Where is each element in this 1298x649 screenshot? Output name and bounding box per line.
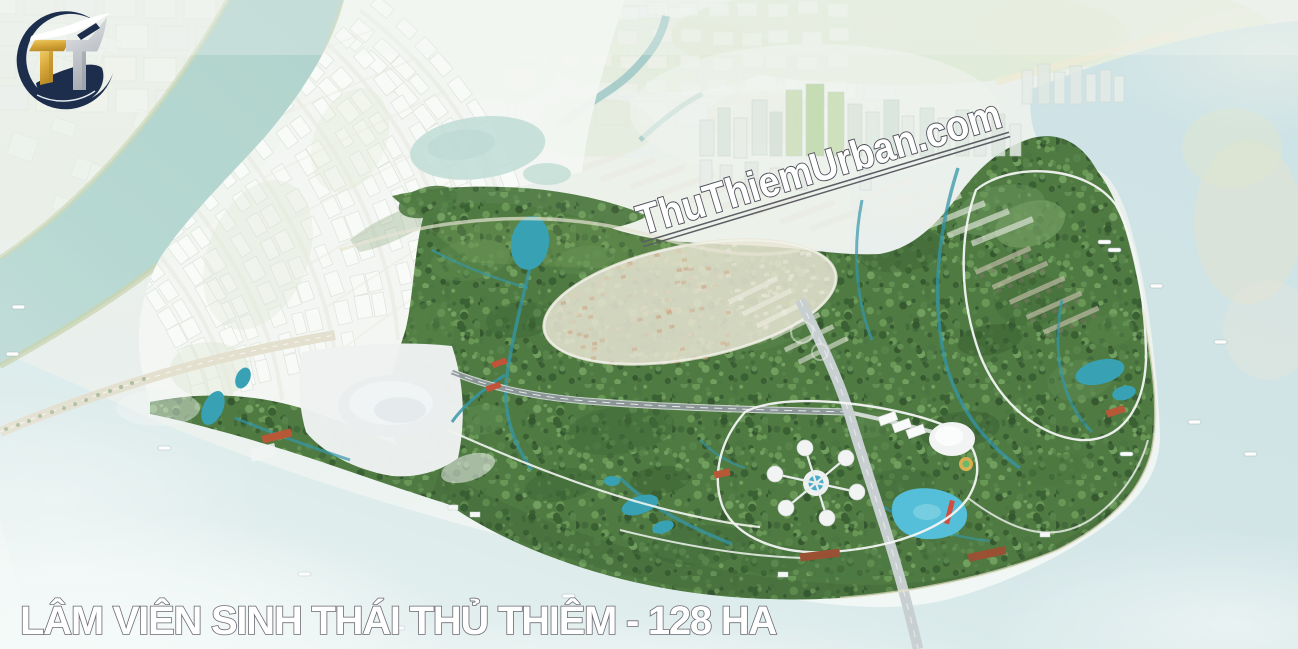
svg-text:LÂM VIÊN SINH THÁI THỦ THIÊM -: LÂM VIÊN SINH THÁI THỦ THIÊM - 128 HA xyxy=(20,597,776,643)
